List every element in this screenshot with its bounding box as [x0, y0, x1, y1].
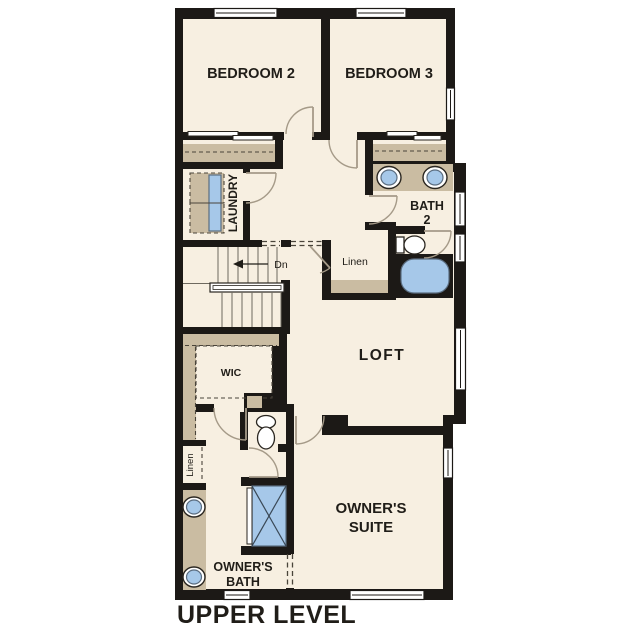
- bath2-toilet: [396, 236, 425, 254]
- linen-lower-label: Linen: [185, 453, 196, 476]
- bedroom3-label: BEDROOM 3: [345, 66, 433, 82]
- bedroom2-label: BEDROOM 2: [207, 66, 295, 82]
- floorplan-page: Dn: [0, 0, 640, 640]
- window: [455, 234, 465, 262]
- bath2-label-line1: BATH: [410, 199, 444, 213]
- bath2-sink: [423, 167, 447, 189]
- stair-direction-label: Dn: [274, 259, 288, 271]
- bedroom3-closet-shelf: [373, 144, 446, 161]
- shower-glass-door: [247, 488, 252, 544]
- bath2-label-line2: 2: [424, 213, 431, 227]
- floorplan-drawing: Dn: [0, 0, 640, 640]
- linen-upper-label: Linen: [342, 256, 368, 268]
- plan-title: UPPER LEVEL: [177, 601, 356, 629]
- window: [447, 88, 455, 120]
- owners-toilet: [257, 416, 276, 450]
- linen-upper-shelf: [331, 280, 388, 293]
- window: [356, 9, 406, 18]
- window: [444, 448, 453, 478]
- owners-bath-label-line1: OWNER'S: [213, 560, 272, 574]
- wic-shelf-top: [183, 334, 279, 346]
- bath2-sink: [377, 167, 401, 189]
- laundry-label: LAUNDRY: [226, 174, 240, 232]
- building-footprint: [175, 8, 466, 600]
- loft-label: LOFT: [359, 347, 405, 364]
- window: [214, 9, 277, 18]
- window: [455, 192, 465, 226]
- window: [224, 591, 250, 600]
- owners-sink: [183, 567, 205, 587]
- owners-suite-label-line1: OWNER'S: [335, 500, 406, 517]
- window: [350, 591, 424, 600]
- owners-sink: [183, 497, 205, 517]
- stair-handrail: [210, 283, 284, 292]
- bath2-tub: [401, 259, 449, 293]
- wic-nook-shelf: [247, 396, 262, 408]
- wic-label: WIC: [221, 367, 242, 379]
- owners-bath-label-line2: BATH: [226, 575, 260, 589]
- window: [456, 328, 466, 390]
- owners-suite-label-line2: SUITE: [349, 519, 393, 536]
- owners-shower: [247, 486, 286, 546]
- wic-shelf-left: [183, 346, 196, 440]
- bedroom2-closet-shelf: [183, 144, 275, 162]
